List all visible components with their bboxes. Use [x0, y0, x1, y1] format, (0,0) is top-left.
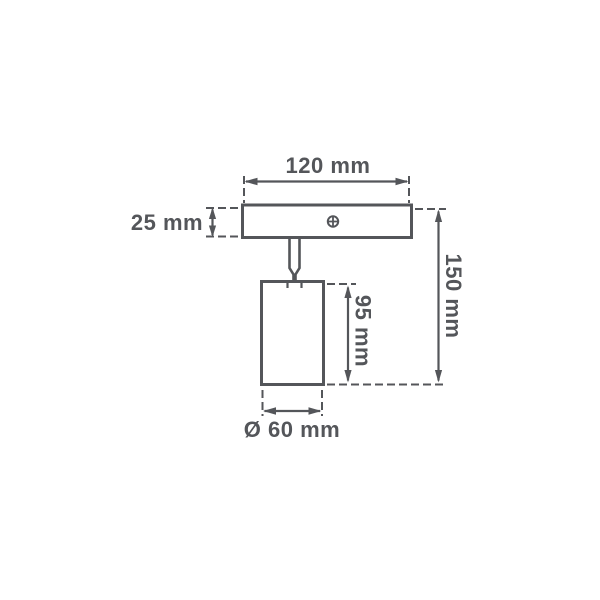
dimension-body-diameter: Ø 60 mm	[244, 390, 340, 442]
arrowhead-down-icon	[344, 370, 351, 383]
fixture-outline	[243, 205, 412, 385]
arrowhead-left-icon	[263, 407, 276, 415]
arrowhead-left-icon	[245, 178, 258, 186]
arrowhead-up-icon	[435, 210, 442, 223]
arrowhead-down-icon	[209, 226, 216, 238]
width-dimension-label: 120 mm	[286, 153, 371, 178]
plate-height-dimension-label: 25 mm	[131, 210, 203, 235]
dimension-width: 120 mm	[244, 153, 409, 203]
dimension-plate-height: 25 mm	[131, 208, 240, 238]
overall-height-dimension-label: 150 mm	[441, 254, 466, 339]
dimension-drawing-canvas: 120 mm 25 mm 150 mm 95 mm	[0, 0, 600, 600]
arrowhead-down-icon	[435, 370, 442, 383]
dimension-body-height: 95 mm	[327, 284, 376, 383]
body-diameter-dimension-label: Ø 60 mm	[244, 417, 340, 442]
arrowhead-up-icon	[209, 208, 216, 220]
body-height-dimension-label: 95 mm	[351, 295, 376, 367]
screw-head-icon	[328, 216, 338, 226]
arrowhead-right-icon	[309, 407, 322, 415]
spotlight-dimension-diagram: 120 mm 25 mm 150 mm 95 mm	[0, 0, 600, 600]
lamp-body	[262, 282, 324, 385]
arrowhead-right-icon	[396, 178, 409, 186]
